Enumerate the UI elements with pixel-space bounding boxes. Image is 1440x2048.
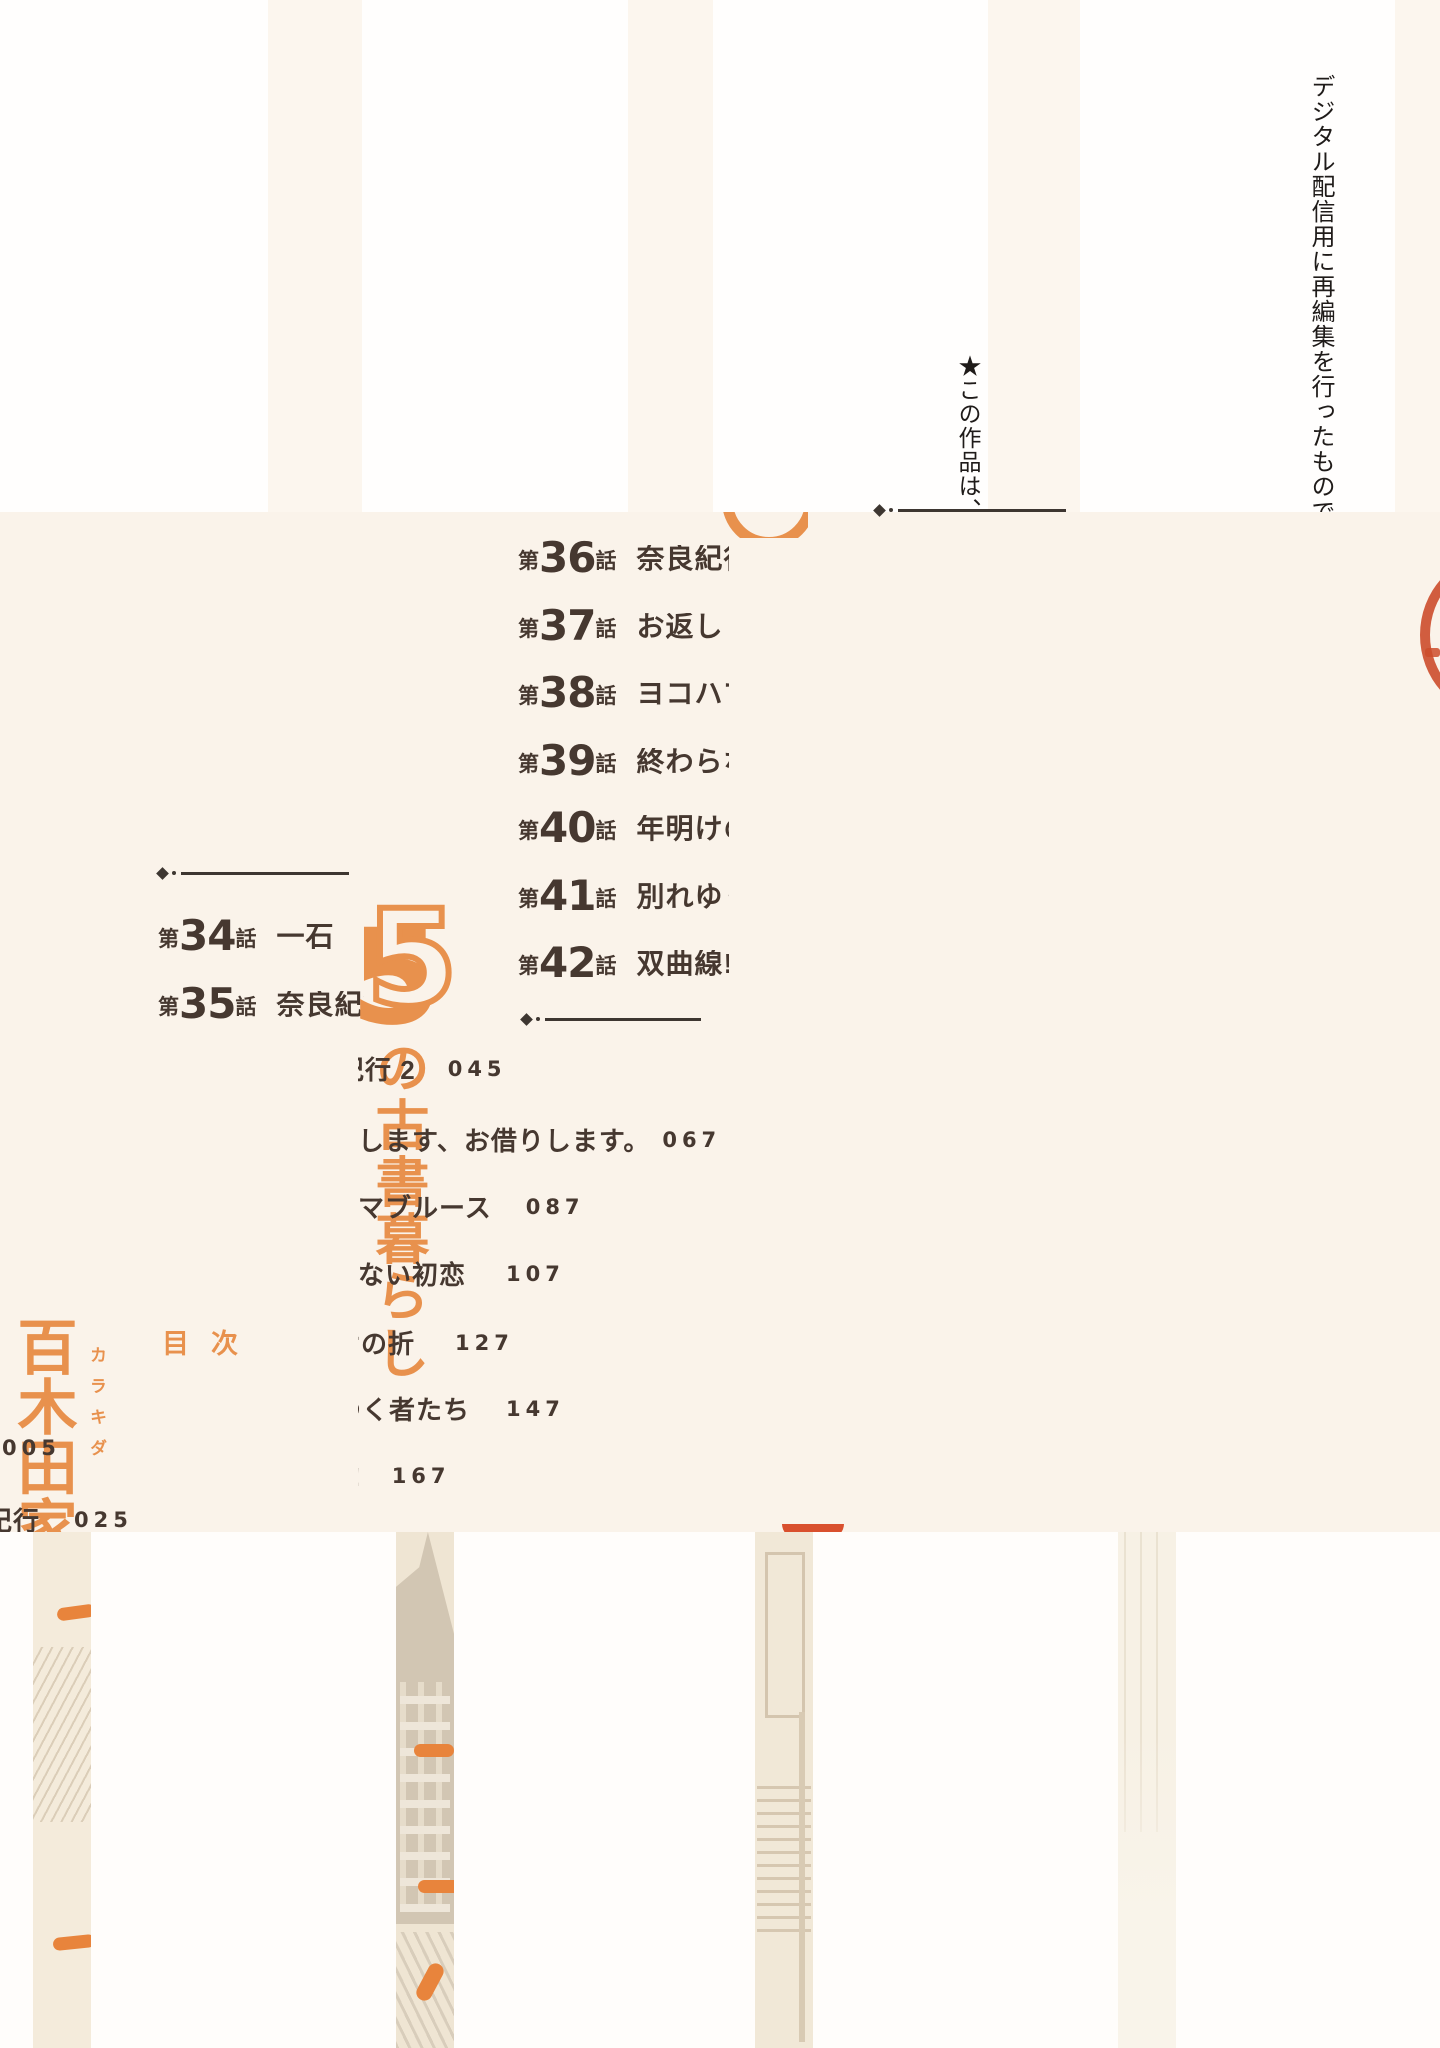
chapter-number: 42 bbox=[539, 947, 595, 980]
page-number: 127 bbox=[455, 1331, 514, 1355]
chapter-suffix: 話 bbox=[595, 551, 616, 575]
divider-bottom bbox=[522, 1014, 701, 1024]
chapter-number: 41 bbox=[539, 880, 595, 913]
chapter-suffix: 話 bbox=[595, 686, 616, 710]
chapter-number: 34 bbox=[179, 920, 235, 953]
title-fragment: 行 2 bbox=[365, 1055, 416, 1085]
chapter-suffix: 話 bbox=[595, 619, 616, 643]
artwork-strip bbox=[755, 1532, 813, 2048]
toc-heading: 目次 bbox=[162, 1322, 260, 1361]
title-fragment: マブルース bbox=[358, 1193, 492, 1223]
copyright-notice-line1: ★この作品は、 bbox=[950, 354, 984, 514]
chapter-prefix: 第 bbox=[518, 551, 539, 575]
toc-row-ch36[interactable]: 第36話 奈良紀行 bbox=[518, 542, 729, 575]
page-number: 067 bbox=[662, 1128, 721, 1152]
artwork-strip bbox=[396, 1532, 454, 2048]
toc-row-ch38[interactable]: 第38話 ヨコハマ bbox=[518, 677, 729, 710]
toc-row-ch40[interactable]: 第40話 年明けの bbox=[518, 812, 729, 845]
divider-dot-icon bbox=[536, 1017, 540, 1021]
chapter-number: 35 bbox=[179, 988, 235, 1021]
chapter-title: お返しし bbox=[636, 613, 729, 643]
chapter-prefix: 第 bbox=[518, 686, 539, 710]
artwork-band bbox=[0, 1532, 1440, 2048]
chapter-suffix: 話 bbox=[595, 956, 616, 980]
page-number: 087 bbox=[526, 1195, 585, 1219]
chapter-title: ヨコハマ bbox=[636, 680, 729, 710]
chapter-title: 年明けの bbox=[636, 815, 729, 845]
chapter-prefix: 第 bbox=[518, 619, 539, 643]
chapter-prefix: 第 bbox=[518, 889, 539, 913]
chapter-title: 一石 bbox=[276, 923, 334, 953]
toc-cont-row-ch37[interactable]: します、お借りします。 067 bbox=[358, 1121, 728, 1157]
toc-row-ch41[interactable]: 第41話 別れゆく bbox=[518, 880, 729, 913]
page-number: 025 bbox=[74, 1508, 133, 1532]
divider-diamond-icon bbox=[156, 867, 169, 880]
chapter-prefix: 第 bbox=[518, 956, 539, 980]
chapter-prefix: 第 bbox=[158, 929, 179, 953]
chapter-suffix: 話 bbox=[595, 821, 616, 845]
toc-cont-row-ch42[interactable]: 線! 167 bbox=[358, 1457, 728, 1493]
title-fragment: します、お借りします。 bbox=[358, 1126, 650, 1156]
chapter-number: 39 bbox=[539, 745, 595, 778]
toc-cont-row-ch41[interactable]: ゆく者たち 147 bbox=[358, 1390, 728, 1426]
chapter-suffix: 話 bbox=[235, 929, 256, 953]
page-edge-strip bbox=[268, 0, 362, 512]
logo-ring-arc bbox=[716, 512, 808, 538]
chapter-title: 終わらな bbox=[636, 748, 729, 778]
title-fragment: の折 bbox=[361, 1329, 415, 1359]
toc-cont-row-ch39[interactable]: ない初恋 107 bbox=[358, 1255, 728, 1291]
chapter-prefix: 第 bbox=[518, 754, 539, 778]
volume-number: 5 bbox=[366, 893, 458, 1025]
title-fragment: ! bbox=[358, 1462, 362, 1492]
copyright-page-band: 、 デジタル配信用に再編集を行ったものです。 ★この作品は、 bbox=[0, 0, 1440, 512]
toc-row-ch37[interactable]: 第37話 お返しし bbox=[518, 610, 729, 643]
toc-cont-row-ch36[interactable]: 紀行 2 045 bbox=[358, 1050, 728, 1086]
furigana-vertical: カラキダ bbox=[88, 1346, 105, 1470]
copyright-text-fragment: 、 bbox=[1410, 0, 1440, 15]
edge-stamp-partial bbox=[1418, 552, 1440, 704]
page-edge-strip bbox=[628, 0, 713, 512]
page-number: 045 bbox=[448, 1057, 507, 1081]
divider-top bbox=[875, 505, 1066, 515]
page-edge-strip bbox=[988, 0, 1080, 512]
table-of-contents-page: 第36話 奈良紀行 第37話 お返しし 第38話 ヨコハマ 第39話 終わらな … bbox=[0, 512, 1440, 1532]
divider-dot-icon bbox=[889, 508, 893, 512]
page-number: 107 bbox=[506, 1262, 565, 1286]
title-fragment: く者たち bbox=[362, 1395, 470, 1425]
divider-dot-icon bbox=[172, 871, 176, 875]
page-number-ch34[interactable]: 005 bbox=[2, 1436, 61, 1460]
chapter-number: 40 bbox=[539, 812, 595, 845]
title-fragment: ない初恋 bbox=[358, 1260, 466, 1290]
toc-row-ch39[interactable]: 第39話 終わらな bbox=[518, 745, 729, 778]
page-number: 167 bbox=[392, 1464, 451, 1488]
clipped-char: 紀 bbox=[358, 1055, 365, 1085]
divider-diamond-icon bbox=[873, 504, 886, 517]
chapter-title: 奈良紀行 bbox=[636, 545, 729, 575]
toc-row-ch34[interactable]: 第34話 一石 bbox=[158, 920, 334, 953]
toc-cont-row-ch40[interactable]: けの折 127 bbox=[358, 1324, 728, 1360]
divider-diamond-icon bbox=[520, 1013, 533, 1026]
page-number: 147 bbox=[506, 1397, 565, 1421]
chapter-prefix: 第 bbox=[518, 821, 539, 845]
toc-row-ch35[interactable]: 第35話 奈良紀行 bbox=[158, 988, 364, 1021]
divider-left bbox=[158, 868, 349, 878]
chapter-title: 別れゆく bbox=[636, 883, 729, 913]
chapter-number: 36 bbox=[539, 542, 595, 575]
chapter-suffix: 話 bbox=[595, 889, 616, 913]
page-edge-strip bbox=[1395, 0, 1440, 512]
chapter-prefix: 第 bbox=[158, 997, 179, 1021]
chapter-number: 37 bbox=[539, 610, 595, 643]
copyright-notice-line2: デジタル配信用に再編集を行ったものです。 bbox=[1303, 74, 1338, 514]
toc-cont-row-ch38[interactable]: マブルース 087 bbox=[358, 1188, 728, 1224]
chapter-suffix: 話 bbox=[595, 754, 616, 778]
chapter-suffix: 話 bbox=[235, 997, 256, 1021]
chapter-title: 双曲線! bbox=[636, 950, 729, 980]
artwork-strip bbox=[33, 1532, 91, 2048]
toc-row-ch42[interactable]: 第42話 双曲線! bbox=[518, 947, 729, 980]
chapter-number: 38 bbox=[539, 677, 595, 710]
artwork-strip bbox=[1118, 1532, 1176, 2048]
